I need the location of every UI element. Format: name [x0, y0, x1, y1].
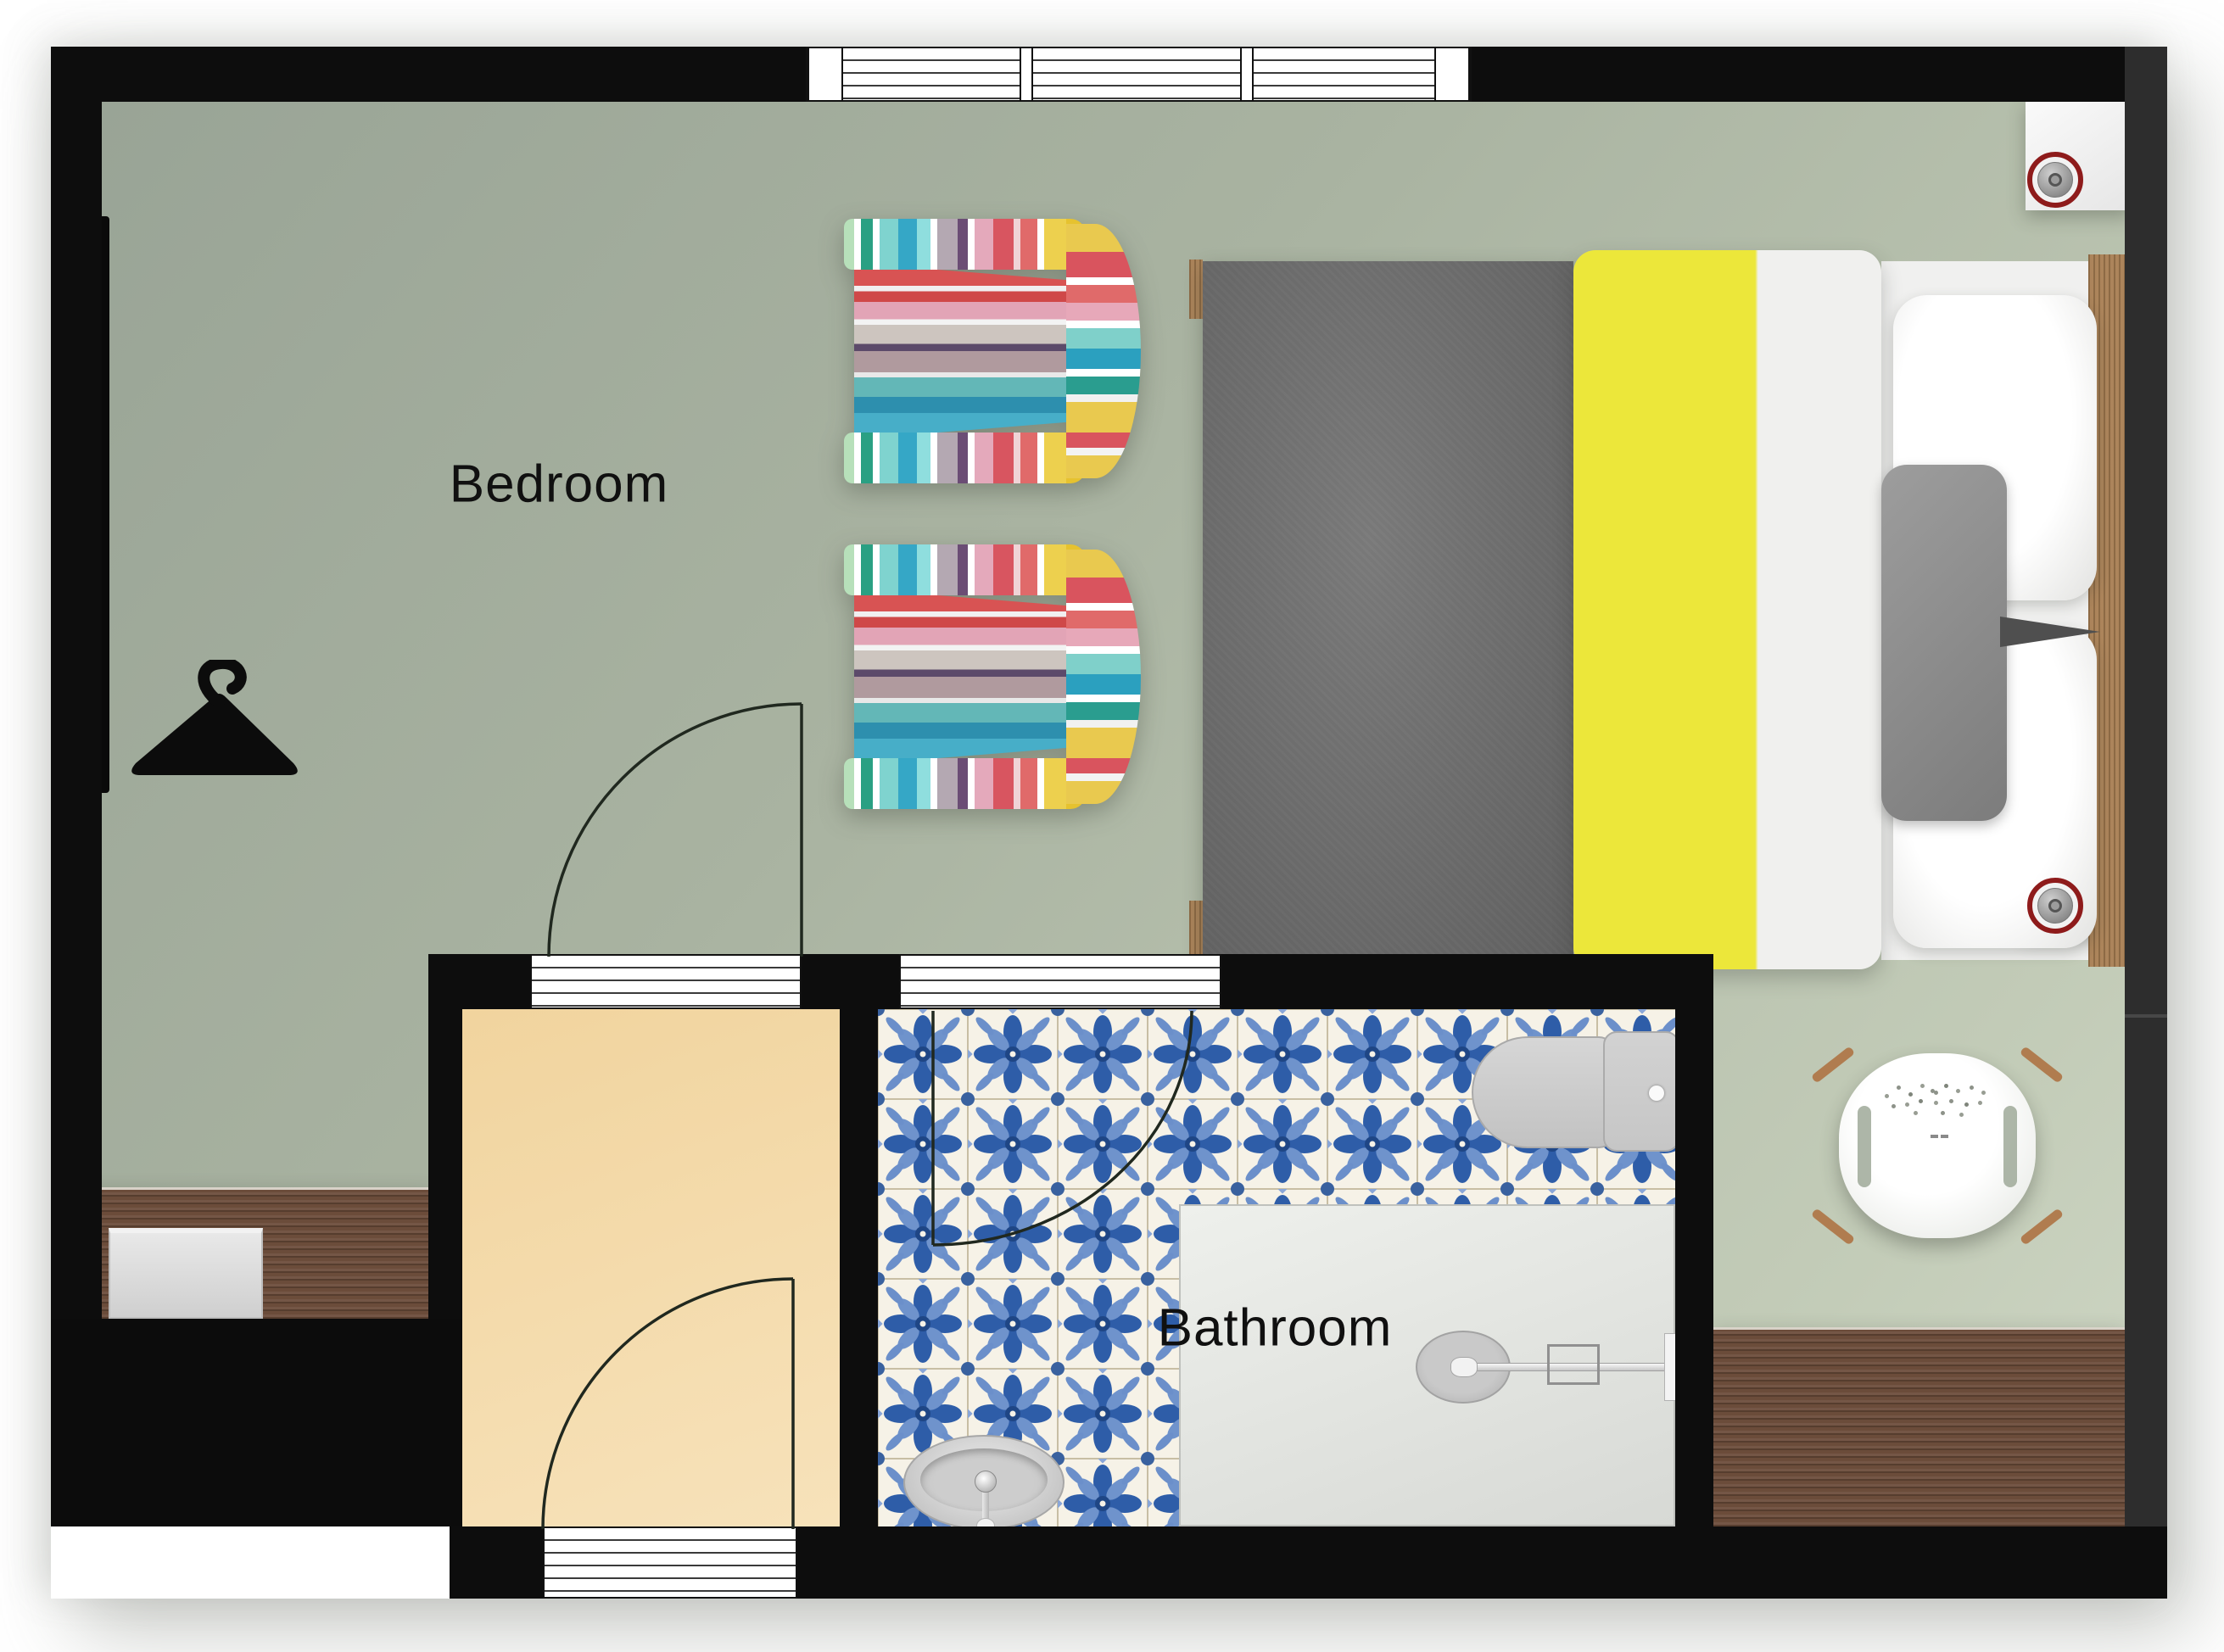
bed-duvet — [1203, 261, 1573, 960]
toilet-flush-button — [1649, 1086, 1664, 1101]
bed-blanket-yellow-white — [1573, 250, 1881, 969]
task-chair-white — [1839, 1053, 2036, 1238]
armchair-armrest-top — [844, 544, 1086, 595]
shower-tray — [1179, 1204, 1675, 1526]
bed-frame-tab-bottom — [1189, 901, 1203, 960]
toilet-tank — [1603, 1031, 1679, 1152]
bathroom-sink — [903, 1435, 1065, 1530]
wall-divider-segment-3 — [1221, 954, 1713, 1009]
wall-hall-bathroom — [840, 954, 878, 1526]
armchair-seat — [854, 589, 1073, 765]
striped-armchair-2 — [844, 544, 1141, 809]
bathroom-label: Bathroom — [1158, 1298, 1393, 1359]
chair-arm-slot — [2003, 1106, 2017, 1187]
chair-arm-slot — [1858, 1106, 1871, 1187]
shower-square-outline — [1547, 1344, 1600, 1385]
shower-head-icon — [1450, 1357, 1478, 1377]
window-jamb-left — [807, 47, 843, 102]
window-mullion — [1240, 47, 1254, 102]
bathroom-door-threshold — [899, 954, 1221, 1009]
faucet-icon — [975, 1471, 997, 1493]
lamp-core — [2048, 173, 2062, 187]
hanger-icon — [119, 660, 310, 787]
chair-center-mark — [1931, 1135, 1938, 1138]
window-jamb-right — [1434, 47, 1470, 102]
armchair-armrest-bottom — [844, 758, 1086, 809]
armchair-armrest-bottom — [844, 433, 1086, 483]
lamp-core — [2048, 899, 2062, 913]
round-lamp-bottom — [2027, 878, 2083, 934]
hall-floor — [462, 1009, 840, 1526]
bedroom-label: Bedroom — [450, 455, 669, 515]
round-lamp-top — [2027, 152, 2083, 208]
wall-right-seam — [2125, 1014, 2167, 1018]
wall-bathroom-right — [1675, 954, 1713, 1526]
chair-speckle-pattern — [1934, 1091, 1938, 1095]
armchair-backrest — [1066, 550, 1141, 804]
window — [806, 47, 1472, 102]
entry-door-threshold — [543, 1526, 797, 1599]
floor-plan-canvas: Bedroom Bathroom — [0, 0, 2224, 1652]
pillow-gray — [1881, 465, 2007, 821]
bed-frame-tab-top — [1189, 260, 1203, 319]
laptop-on-desk — [109, 1228, 263, 1319]
armchair-backrest — [1066, 224, 1141, 478]
armchair-armrest-top — [844, 219, 1086, 270]
bedroom-door-threshold — [530, 954, 802, 1009]
toilet-bowl — [1472, 1036, 1616, 1148]
armchair-seat — [854, 263, 1073, 439]
desk-right — [1713, 1327, 2125, 1526]
striped-armchair-1 — [844, 219, 1141, 483]
wall-right — [2125, 47, 2167, 1599]
closet-block — [51, 1319, 462, 1526]
window-mullion — [1020, 47, 1033, 102]
wall-left — [51, 47, 102, 1526]
